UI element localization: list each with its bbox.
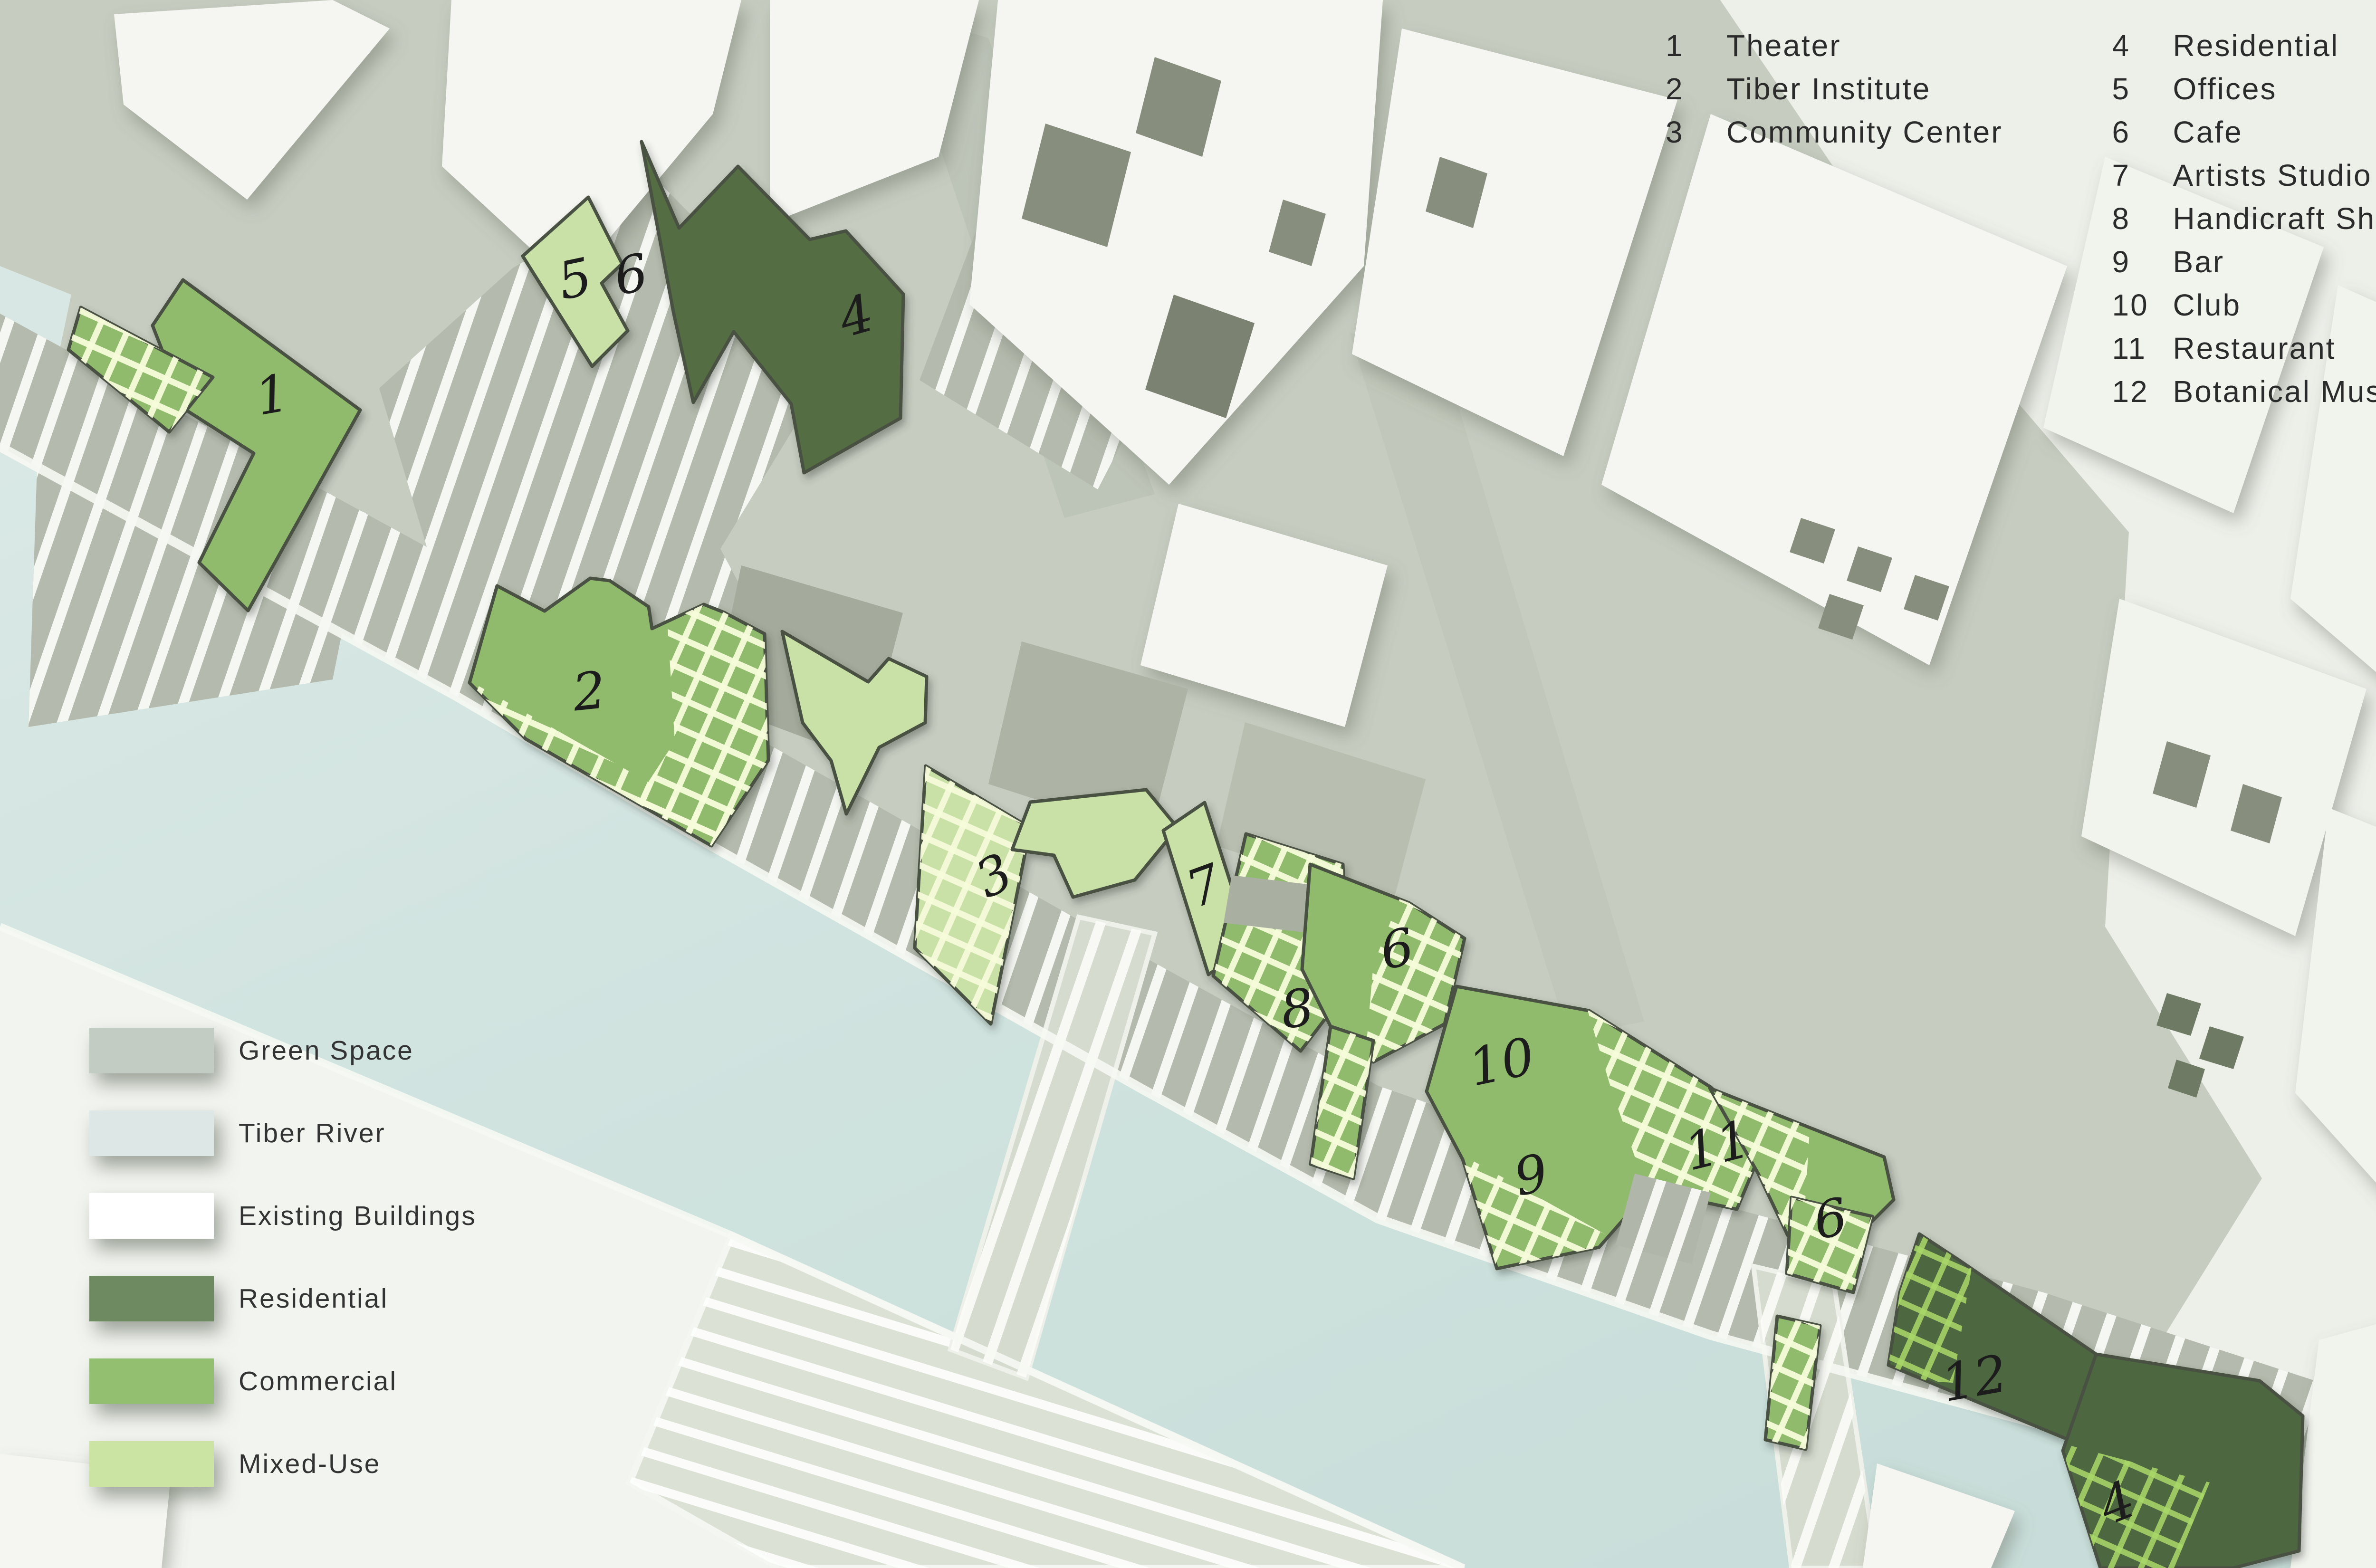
legend-building-number: 3 <box>1666 115 1726 150</box>
legend-zone-label: Green Space <box>239 1035 414 1066</box>
legend-buildings: 1 Theater 2 Tiber Institute 3 Community … <box>1666 24 2376 413</box>
legend-building-row: 10 Club <box>2112 283 2376 326</box>
legend-zone-row: Tiber River <box>89 1092 477 1175</box>
legend-building-number: 10 <box>2112 287 2173 323</box>
legend-building-row: 4 Residential <box>2112 24 2376 67</box>
legend-building-label: Artists Studio <box>2173 158 2372 193</box>
legend-zone-swatch <box>89 1193 214 1239</box>
legend-zone-label: Existing Buildings <box>239 1200 477 1232</box>
legend-zone-row: Commercial <box>89 1340 477 1423</box>
legend-zone-label: Residential <box>239 1283 388 1314</box>
legend-building-label: Cafe <box>2173 115 2243 150</box>
legend-zone-swatch <box>89 1028 214 1073</box>
legend-building-number: 9 <box>2112 244 2173 279</box>
legend-building-number: 1 <box>1666 28 1726 63</box>
legend-zone-swatch <box>89 1110 214 1156</box>
legend-building-row: 7 Artists Studio <box>2112 153 2376 197</box>
legend-building-label: Botanical Museum <box>2173 374 2376 409</box>
legend-building-number: 4 <box>2112 28 2173 63</box>
legend-zone-swatch <box>89 1441 214 1487</box>
legend-zone-label: Commercial <box>239 1366 397 1397</box>
legend-building-number: 5 <box>2112 71 2173 106</box>
legend-building-row: 1 Theater <box>1666 24 2003 67</box>
legend-buildings-col1: 1 Theater 2 Tiber Institute 3 Community … <box>1666 24 2003 413</box>
legend-building-label: Residential <box>2173 28 2339 63</box>
legend-building-label: Theater <box>1726 28 1841 63</box>
legend-building-label: Offices <box>2173 71 2277 106</box>
legend-building-row: 11 Restaurant <box>2112 326 2376 370</box>
legend-building-row: 2 Tiber Institute <box>1666 67 2003 110</box>
legend-zone-label: Tiber River <box>239 1118 386 1149</box>
legend-buildings-col2: 4 Residential 5 Offices 6 Cafe 7 Artists… <box>2112 24 2376 413</box>
masterplan-map: 1 2 3 4 5 6 7 8 6 10 9 11 6 12 4 <box>0 0 2376 1568</box>
legend-building-row: 8 Handicraft Shops <box>2112 197 2376 240</box>
legend-zone-row: Mixed-Use <box>89 1423 477 1505</box>
legend-zone-swatch <box>89 1358 214 1404</box>
legend-building-label: Restaurant <box>2173 331 2336 366</box>
legend-zone-row: Existing Buildings <box>89 1175 477 1257</box>
legend-building-label: Community Center <box>1726 115 2003 150</box>
legend-building-row: 3 Community Center <box>1666 110 2003 153</box>
legend-building-number: 11 <box>2112 331 2173 366</box>
legend-zone-swatch <box>89 1276 214 1321</box>
legend-building-row: 12 Botanical Museum <box>2112 370 2376 413</box>
legend-building-row: 5 Offices <box>2112 67 2376 110</box>
legend-building-label: Bar <box>2173 244 2225 279</box>
legend-zone-row: Green Space <box>89 1009 477 1092</box>
legend-building-row: 6 Cafe <box>2112 110 2376 153</box>
legend-building-number: 8 <box>2112 201 2173 236</box>
legend-building-label: Tiber Institute <box>1726 71 1931 106</box>
legend-building-number: 2 <box>1666 71 1726 106</box>
legend-building-number: 6 <box>2112 115 2173 150</box>
legend-building-label: Handicraft Shops <box>2173 201 2376 236</box>
legend-building-label: Club <box>2173 287 2242 323</box>
building-8-courtyard <box>1224 875 1312 932</box>
legend-building-number: 12 <box>2112 374 2173 409</box>
legend-building-number: 7 <box>2112 158 2173 193</box>
legend-building-row: 9 Bar <box>2112 240 2376 283</box>
legend-zone-row: Residential <box>89 1257 477 1340</box>
legend-zone-label: Mixed-Use <box>239 1448 381 1480</box>
legend-zones: Green Space Tiber River Existing Buildin… <box>89 1009 477 1505</box>
